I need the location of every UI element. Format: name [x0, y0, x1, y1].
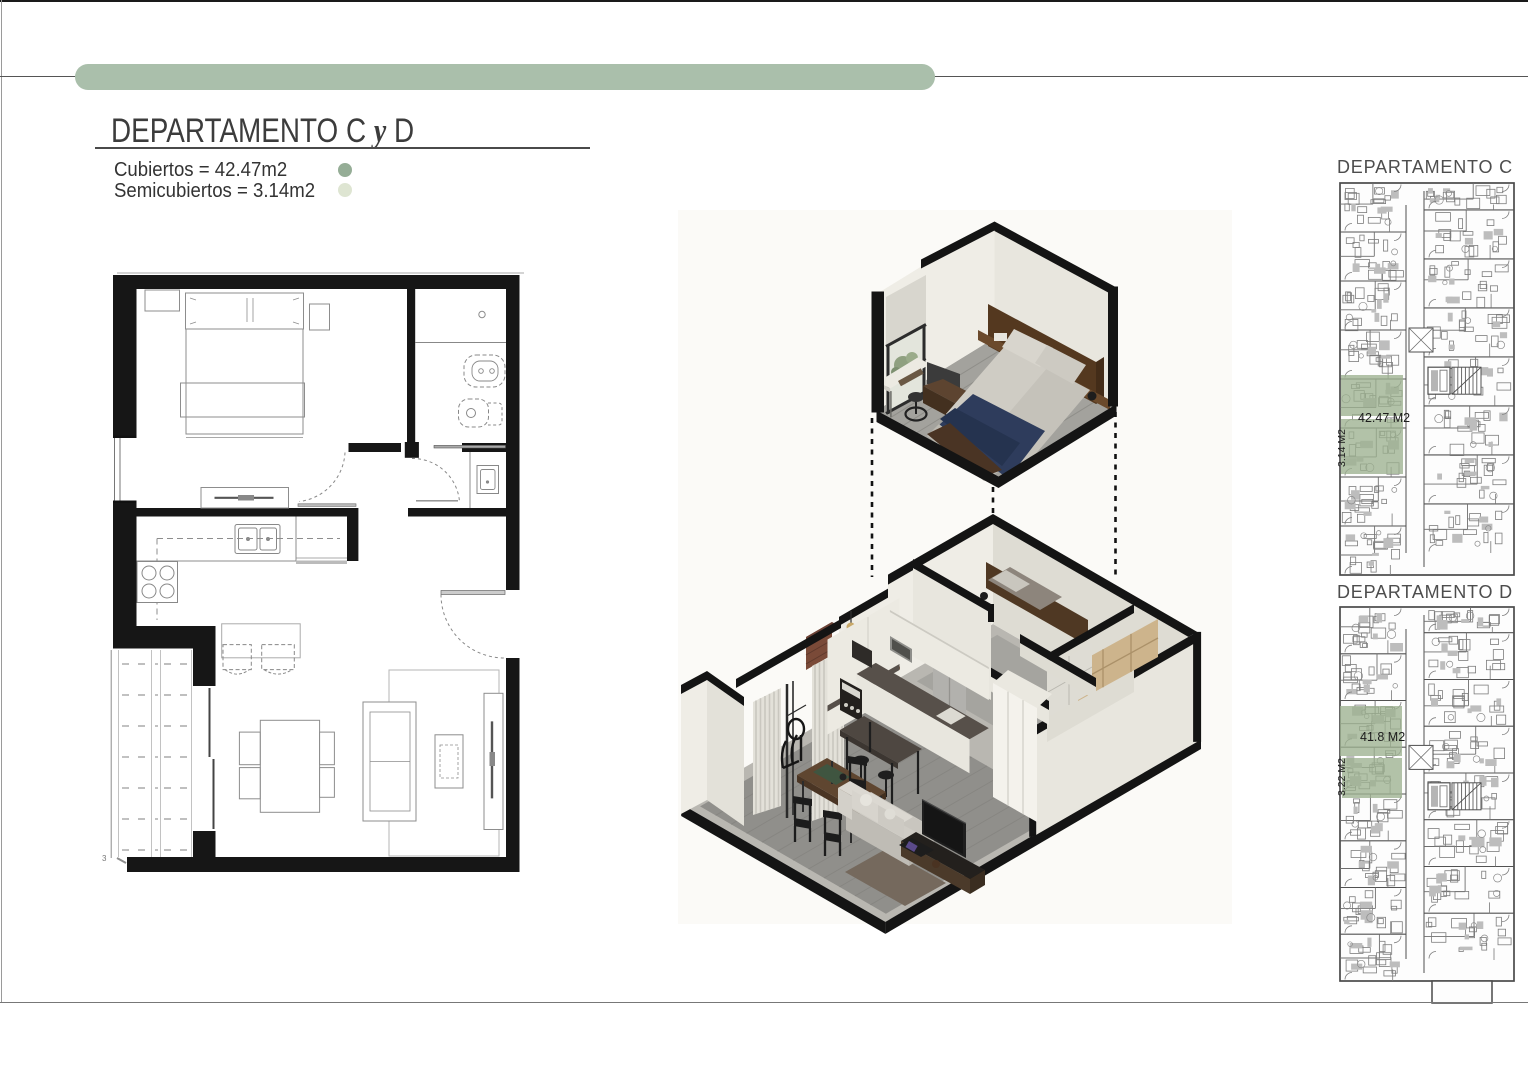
- svg-text:42.47 M2: 42.47 M2: [1358, 411, 1410, 425]
- svg-text:3.14 M2: 3.14 M2: [1336, 429, 1348, 467]
- svg-text:3: 3: [102, 854, 107, 863]
- svg-text:3.22 M2: 3.22 M2: [1336, 758, 1348, 796]
- svg-text:41.8 M2: 41.8 M2: [1360, 730, 1405, 744]
